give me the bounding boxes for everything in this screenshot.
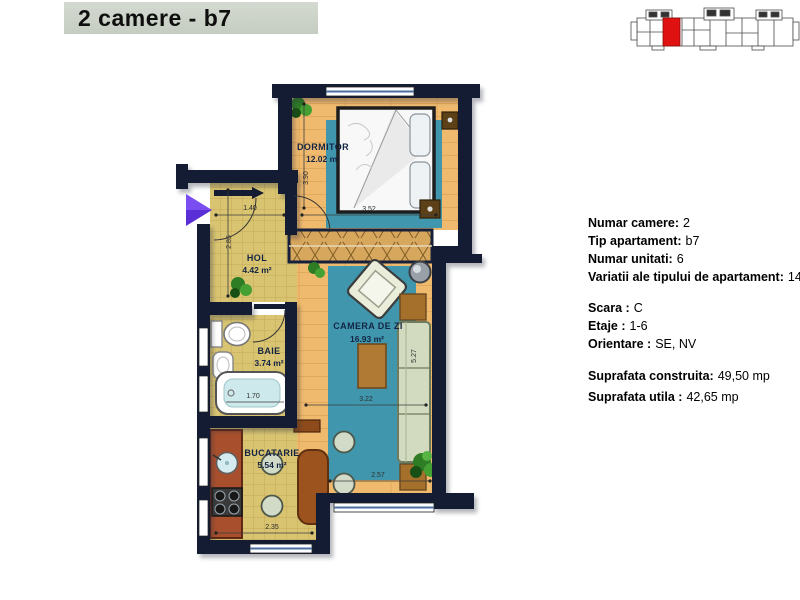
kitchen-counter <box>210 430 242 538</box>
dim-living-width: 3.22 <box>359 396 373 403</box>
locator-end-cap-right <box>793 22 799 40</box>
spec-variatii: Variatii ale tipului de apartament:14 <box>588 268 800 286</box>
label-hol: HOL <box>247 253 267 263</box>
floor-plan: 3.52 3.90 1.40 2.85 1.70 3.22 5.27 2.57 … <box>176 84 482 554</box>
area-hol: 4.42 m² <box>242 265 271 275</box>
spec-tip-apartament: Tip apartament:b7 <box>588 232 800 250</box>
coffee-table <box>358 344 386 388</box>
side-table-top <box>400 294 426 320</box>
spec-suprafata-construita: Suprafata construita:49,50 mp <box>588 366 800 387</box>
spec-group-identity: Numar camere:2 Tip apartament:b7 Numar u… <box>588 214 800 286</box>
bed <box>338 108 434 212</box>
spec-group-areas: Suprafata construita:49,50 mp Suprafata … <box>588 366 800 408</box>
label-baie: BAIE <box>257 346 280 356</box>
dim-bucatarie-width: 2.35 <box>265 524 279 531</box>
dim-living-height: 5.27 <box>411 349 418 363</box>
locator-bottom-blocks <box>652 46 764 50</box>
dim-hol-width: 1.40 <box>243 205 257 212</box>
kitchen-window <box>250 544 312 553</box>
area-bucatarie: 5.54 m² <box>257 460 286 470</box>
locator-end-cap-left <box>631 22 637 40</box>
dim-bathtub-length: 1.70 <box>246 393 260 400</box>
wardrobe <box>289 230 432 262</box>
dim-dormitor-height: 3.90 <box>303 171 310 185</box>
locator-highlighted-unit <box>663 18 680 46</box>
entrance-arrow-icon <box>186 194 212 226</box>
apartment-info-panel: Numar camere:2 Tip apartament:b7 Numar u… <box>588 214 800 421</box>
apartment-floorplan-page: { "title": "2 camere - b7", "plan": { "r… <box>0 0 800 600</box>
area-camera-de-zi: 16.93 m² <box>350 334 384 344</box>
dim-dormitor-width: 3.52 <box>362 206 376 213</box>
spec-numar-camere: Numar camere:2 <box>588 214 800 232</box>
chair <box>262 496 283 517</box>
label-bucatarie: BUCATARIE <box>244 448 299 458</box>
kitchen-sideboard <box>294 420 320 432</box>
spec-orientare: Orientare :SE, NV <box>588 335 800 353</box>
toilet <box>211 321 250 347</box>
area-dormitor: 12.02 m² <box>306 154 340 164</box>
dim-living-width2: 2.57 <box>371 472 385 479</box>
stove <box>212 488 242 516</box>
spec-etaje: Etaje :1-6 <box>588 317 800 335</box>
label-dormitor: DORMITOR <box>297 142 349 152</box>
label-camera-de-zi: CAMERA DE ZI <box>333 321 402 331</box>
spec-scara: Scara :C <box>588 299 800 317</box>
pillow-top <box>410 114 430 156</box>
floor-lamp <box>410 262 431 283</box>
chair <box>334 474 355 495</box>
spec-numar-unitati: Numar unitati:6 <box>588 250 800 268</box>
spec-suprafata-utila: Suprafata utila :42,65 mp <box>588 387 800 408</box>
bedroom-window <box>326 87 414 96</box>
nightstand-top <box>442 112 458 129</box>
living-window <box>334 503 434 512</box>
sofa <box>398 322 430 462</box>
dim-hol-height: 2.85 <box>226 235 233 249</box>
spec-group-location: Scara :C Etaje :1-6 Orientare :SE, NV <box>588 299 800 353</box>
chair <box>334 432 355 453</box>
hall-floor <box>210 183 285 302</box>
building-locator-map <box>631 8 799 50</box>
area-baie: 3.74 m² <box>254 358 283 368</box>
